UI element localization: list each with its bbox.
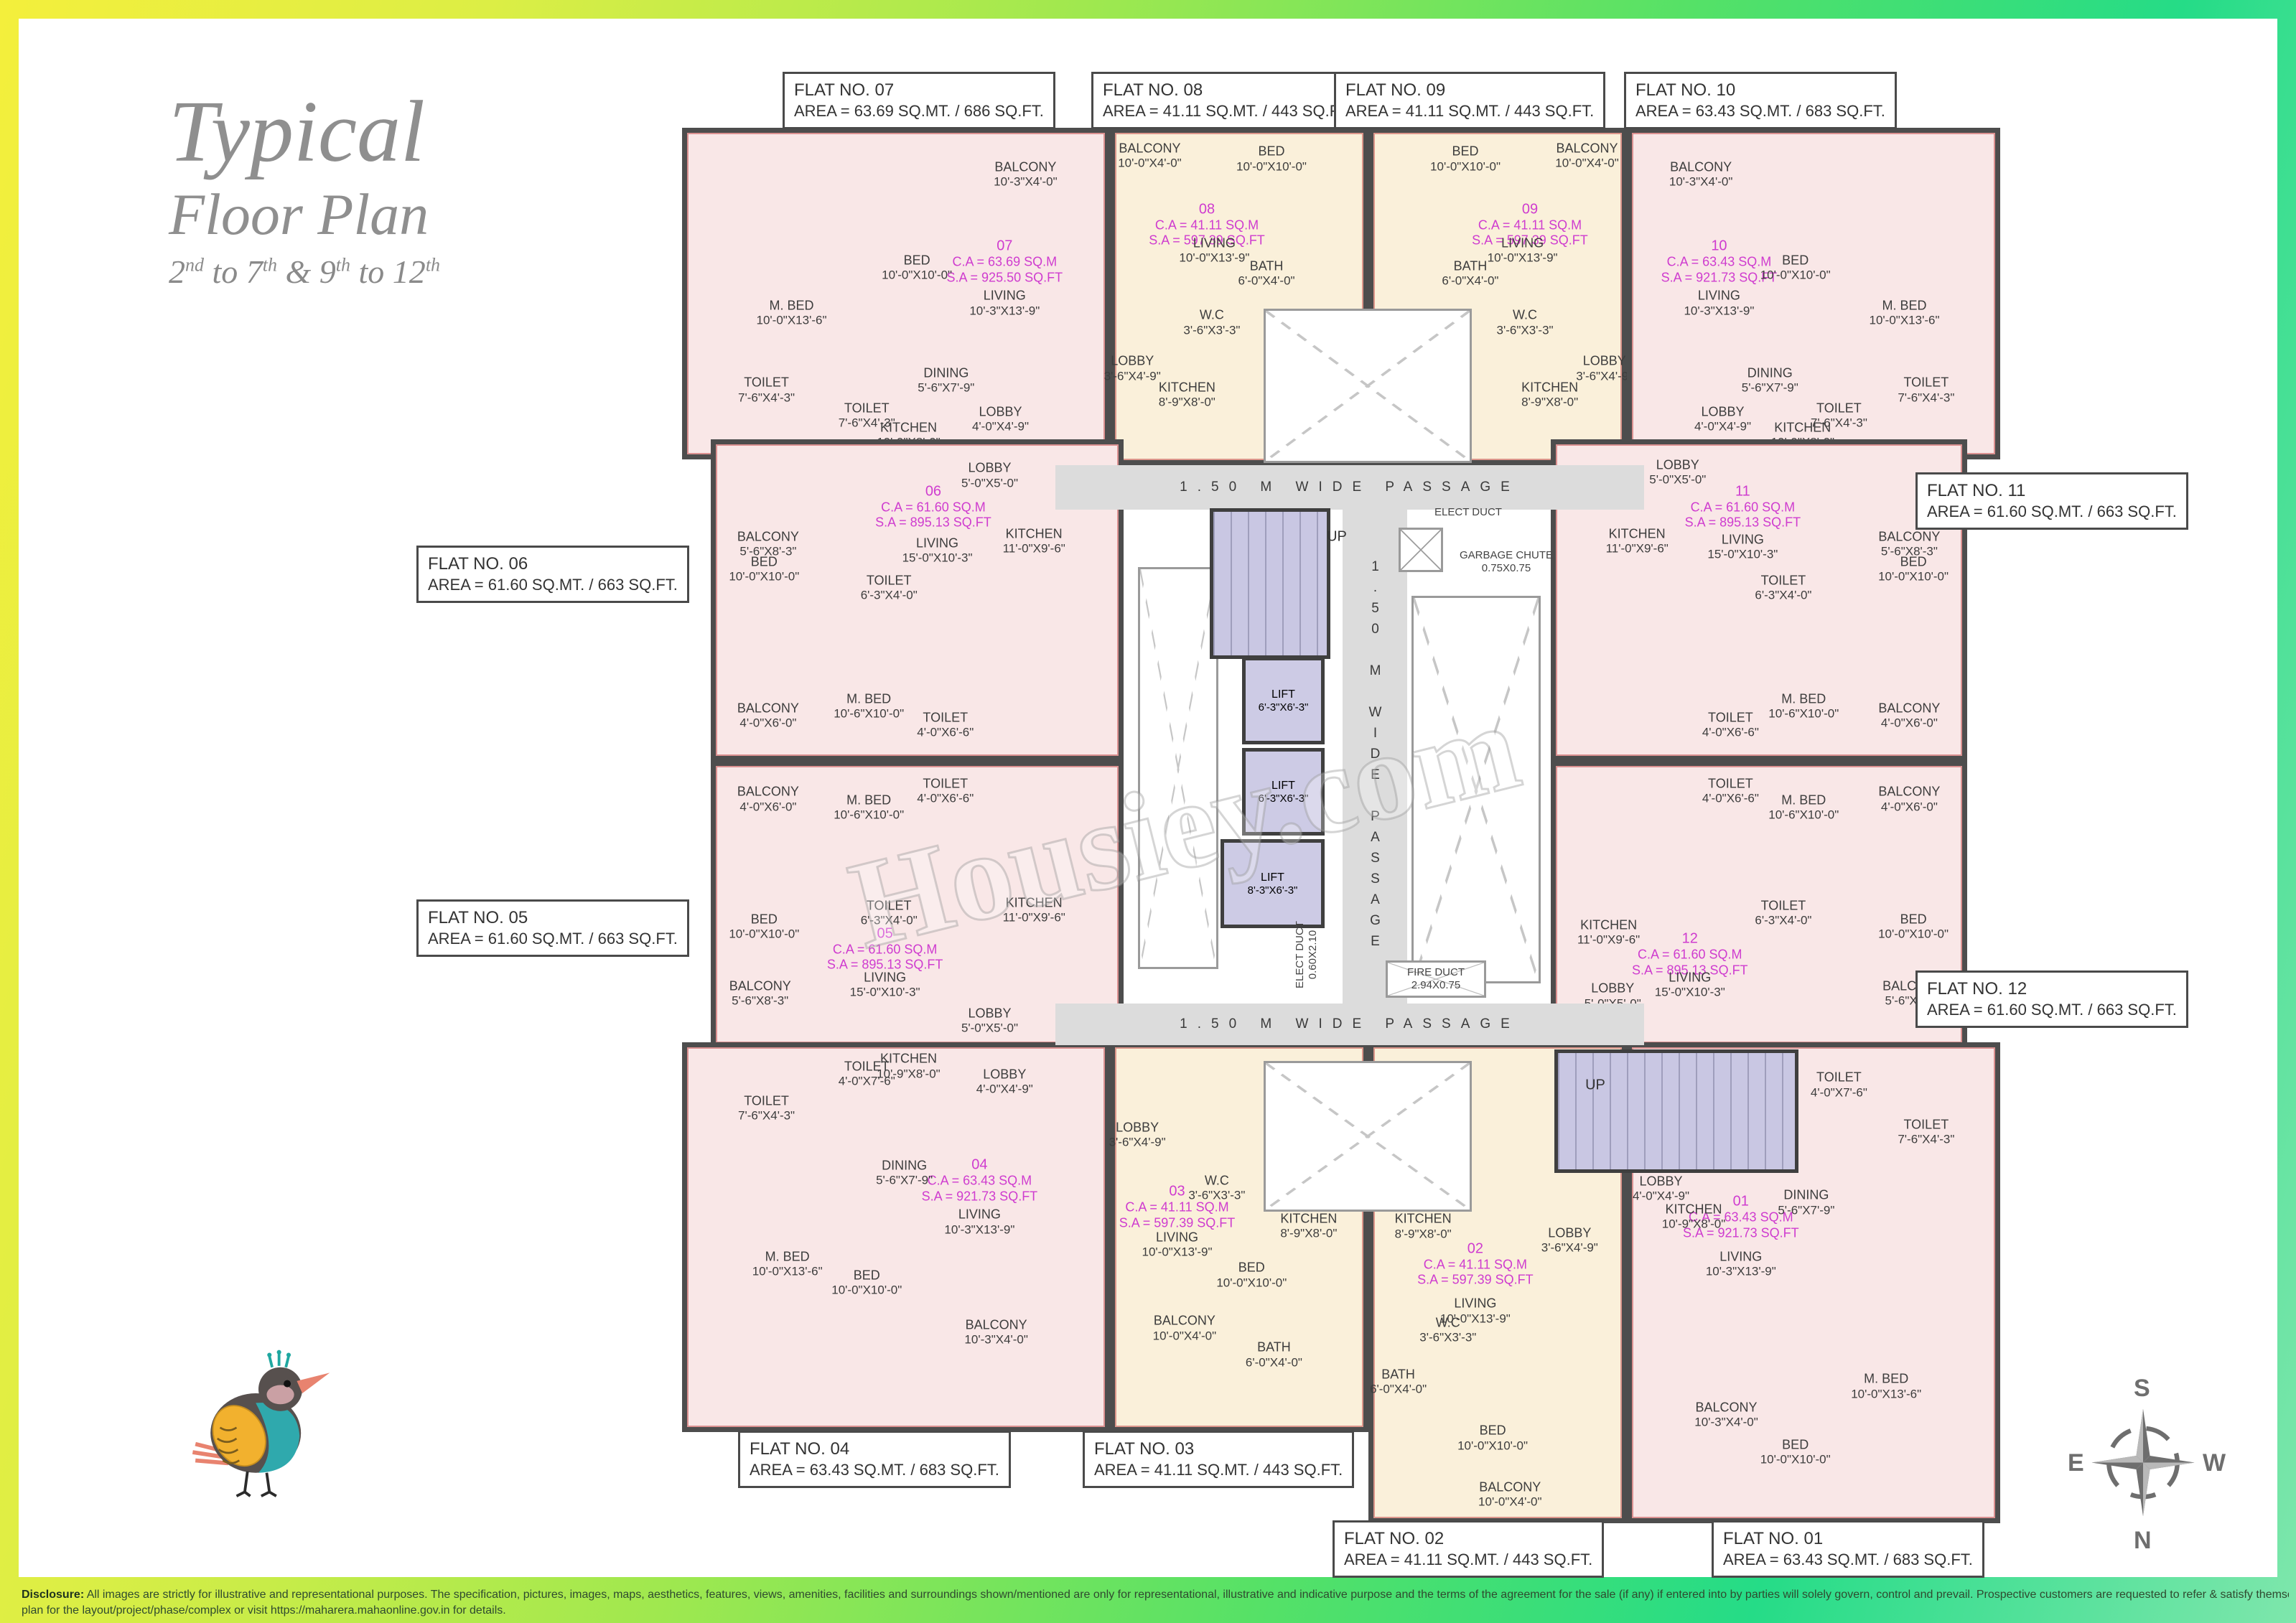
room-label-balcony-name: BALCONY [737, 529, 799, 544]
flat-box-12-area: AREA = 61.60 SQ.MT. / 663 SQ.FT. [1927, 1000, 2177, 1021]
room-label-balcony-name: BALCONY [1694, 1400, 1758, 1415]
flat-11-usa: S.A = 895.13 SQ.FT [1685, 515, 1801, 531]
room-label-lobby-dim: 4'-0"X4'-9" [972, 419, 1029, 434]
room-label-balcony-dim: 10'-0"X4'-0" [1153, 1329, 1217, 1343]
room-label-m-bed: M. BED10'-6"X10'-0" [834, 792, 904, 822]
floor-range-part: 2 [169, 253, 185, 290]
room-label-living-name: LIVING [1684, 289, 1754, 304]
room-label-bed: BED10'-0"X10'-0" [1430, 144, 1501, 174]
room-label-toilet-name: TOILET [1898, 375, 1954, 390]
room-label-balcony-dim: 4'-0"X6'-0" [737, 800, 799, 814]
flat-04-uid: 04 [922, 1156, 1038, 1174]
room-label-toilet: TOILET4'-0"X6'-6" [1702, 710, 1759, 739]
room-label-lobby-dim: 4'-0"X4'-9" [1633, 1189, 1689, 1203]
room-label-m-bed: M. BED10'-6"X10'-0" [1768, 691, 1839, 721]
room-label-dining-name: DINING [1742, 365, 1798, 380]
flat-07-area: 07C.A = 63.69 SQ.MS.A = 925.50 SQ.FTM. B… [682, 128, 1110, 459]
stair-up-label-bottom: UP [1585, 1077, 1605, 1094]
room-label-toilet-dim: 7'-6"X4'-3" [738, 390, 795, 405]
room-label-toilet: TOILET4'-0"X6'-6" [1702, 776, 1759, 805]
room-label-toilet: TOILET7'-6"X4'-3" [738, 375, 795, 405]
room-label-living-dim: 10'-0"X13'-9" [1142, 1245, 1213, 1260]
room-label-lobby-name: LOBBY [1633, 1174, 1689, 1189]
flat-box-02: FLAT NO. 02AREA = 41.11 SQ.MT. / 443 SQ.… [1333, 1520, 1604, 1578]
room-label-dining-dim: 5'-6"X7'-9" [1742, 381, 1798, 396]
room-label-balcony-dim: 10'-0"X4'-0" [1478, 1495, 1542, 1510]
room-label-dining: DINING5'-6"X7'-9" [876, 1158, 933, 1187]
room-label-dining: DINING5'-6"X7'-9" [1778, 1188, 1834, 1217]
shaft-void [1264, 309, 1472, 463]
room-label-lobby-name: LOBBY [961, 1006, 1018, 1021]
room-label-lobby: LOBBY3'-6"X4'-9" [1109, 1120, 1166, 1149]
room-label-bath-name: BATH [1238, 258, 1295, 273]
room-label-living-name: LIVING [1706, 1249, 1776, 1264]
room-label-bath-dim: 6'-0"X4'-0" [1442, 274, 1498, 289]
flat-box-10-area: AREA = 63.43 SQ.MT. / 683 SQ.FT. [1635, 101, 1885, 122]
flat-box-09-area: AREA = 41.11 SQ.MT. / 443 SQ.FT. [1345, 101, 1594, 122]
room-label-bed-dim: 10'-0"X10'-0" [1878, 569, 1949, 584]
lift-shaft: LIFT6'-3"X6'-3" [1242, 748, 1325, 836]
passage-bottom: 1.50 M WIDE PASSAGE [1055, 1004, 1644, 1045]
floor-range-part: th [336, 255, 350, 276]
flat-07-usa: S.A = 925.50 SQ.FT [947, 270, 1063, 286]
room-label-living-dim: 15'-0"X10'-3" [1707, 548, 1778, 562]
room-label-living-name: LIVING [902, 535, 973, 551]
room-label-kitchen: KITCHEN8'-9"X8'-0" [1395, 1212, 1452, 1241]
room-label-toilet-dim: 7'-6"X4'-3" [1898, 1133, 1954, 1147]
garbage-chute-box [1399, 528, 1443, 572]
room-label-balcony-name: BALCONY [1555, 141, 1619, 156]
room-label-living-name: LIVING [969, 289, 1040, 304]
flat-04-area: 04C.A = 63.43 SQ.MS.A = 921.73 SQ.FTM. B… [682, 1042, 1110, 1432]
flat-box-10-title: FLAT NO. 10 [1635, 79, 1885, 101]
compass-bottom-label: N [2134, 1527, 2152, 1555]
room-label-lobby-name: LOBBY [1649, 457, 1706, 472]
passage-top: 1.50 M WIDE PASSAGE [1055, 465, 1644, 510]
room-label-bed-name: BED [1457, 1423, 1528, 1439]
room-label-living-name: LIVING [1488, 236, 1558, 251]
fire-duct-label: FIRE DUCT2.94X0.75 [1407, 966, 1465, 992]
room-label-living-dim: 15'-0"X10'-3" [850, 986, 920, 1000]
room-label-lobby-dim: 4'-0"X4'-9" [1694, 419, 1751, 434]
room-label-m-bed: M. BED10'-6"X10'-0" [834, 691, 904, 721]
room-label-kitchen-name: KITCHEN [877, 420, 941, 435]
room-label-toilet-dim: 6'-3"X4'-0" [861, 588, 918, 602]
passage-label: 1.50 M WIDE PASSAGE [1180, 1016, 1520, 1032]
flat-09-uid: 09 [1472, 200, 1588, 218]
room-label-lobby-dim: 5'-0"X5'-0" [1649, 473, 1706, 487]
room-label-kitchen-dim: 11'-0"X9'-6" [1003, 910, 1065, 925]
room-label-m-bed-dim: 10'-6"X10'-0" [1768, 706, 1839, 721]
room-label-living-dim: 10'-3"X13'-9" [1706, 1264, 1776, 1278]
room-label-balcony-dim: 10'-0"X4'-0" [1555, 156, 1619, 171]
flat-box-09: FLAT NO. 09AREA = 41.11 SQ.MT. / 443 SQ.… [1334, 72, 1605, 129]
flat-02-uid: 02 [1417, 1240, 1534, 1257]
floor-range-part: nd [185, 255, 204, 276]
flat-box-04-area: AREA = 63.43 SQ.MT. / 683 SQ.FT. [750, 1460, 999, 1481]
room-label-bed-dim: 10'-0"X10'-0" [1430, 159, 1501, 174]
lift-label: LIFT8'-3"X6'-3" [1248, 871, 1298, 897]
flat-box-07-title: FLAT NO. 07 [794, 79, 1044, 101]
flat-box-07: FLAT NO. 07AREA = 63.69 SQ.MT. / 686 SQ.… [783, 72, 1055, 129]
room-label-w-c-dim: 3'-6"X3'-3" [1419, 1330, 1476, 1344]
flat-09-uca: C.A = 41.11 SQ.M [1472, 218, 1588, 233]
room-label-lobby: LOBBY4'-0"X4'-9" [1633, 1174, 1689, 1203]
room-label-bed-dim: 10'-0"X10'-0" [1457, 1439, 1528, 1453]
room-label-bed-dim: 10'-0"X10'-0" [729, 927, 799, 941]
flat-04-usa: S.A = 921.73 SQ.FT [922, 1189, 1038, 1205]
room-label-lobby-name: LOBBY [1541, 1225, 1598, 1240]
flat-box-06-title: FLAT NO. 06 [428, 553, 678, 575]
room-label-lobby-name: LOBBY [972, 404, 1029, 419]
room-label-living-dim: 15'-0"X10'-3" [902, 551, 973, 565]
flat-box-12-title: FLAT NO. 12 [1927, 978, 2177, 1000]
floor-range: 2nd to 7th & 9th to 12th [169, 254, 571, 291]
room-label-balcony: BALCONY4'-0"X6'-0" [1878, 701, 1940, 730]
flat-04-uca: C.A = 63.43 SQ.M [922, 1174, 1038, 1189]
room-label-toilet-dim: 4'-0"X6'-6" [917, 791, 974, 805]
room-label-bed-dim: 10'-0"X10'-0" [729, 569, 799, 584]
room-label-w-c-dim: 3'-6"X3'-3" [1183, 323, 1240, 337]
room-label-balcony-name: BALCONY [737, 701, 799, 716]
room-label-toilet: TOILET7'-6"X4'-3" [738, 1093, 795, 1123]
flat-08-uid: 08 [1149, 200, 1265, 218]
room-label-m-bed: M. BED10'-6"X10'-0" [1768, 792, 1839, 822]
room-label-lobby-name: LOBBY [1109, 1120, 1166, 1135]
flat-10-uid: 10 [1661, 238, 1778, 255]
room-label-m-bed: M. BED10'-0"X13'-6" [757, 298, 827, 327]
flat-07-uca: C.A = 63.69 SQ.M [947, 255, 1063, 271]
room-label-toilet-dim: 4'-0"X6'-6" [1702, 725, 1759, 739]
flat-07-unit-info: 07C.A = 63.69 SQ.MS.A = 925.50 SQ.FT [947, 238, 1063, 286]
room-label-w-c-name: W.C [1419, 1315, 1476, 1330]
flat-box-04-title: FLAT NO. 04 [750, 1438, 999, 1460]
room-label-kitchen-name: KITCHEN [1395, 1212, 1452, 1227]
room-label-lobby-dim: 3'-6"X4'-9" [1104, 369, 1161, 383]
room-label-living: LIVING10'-0"X13'-9" [1142, 1230, 1213, 1259]
flat-05-uca: C.A = 61.60 SQ.M [827, 942, 943, 958]
flat-box-06-area: AREA = 61.60 SQ.MT. / 663 SQ.FT. [428, 575, 678, 596]
room-label-balcony-dim: 10'-3"X4'-0" [964, 1332, 1028, 1347]
floor-range-part: to 12 [350, 253, 426, 290]
room-label-kitchen-dim: 11'-0"X9'-6" [1577, 932, 1640, 947]
passage-label: 1.50 M WIDE PASSAGE [1367, 559, 1383, 955]
room-label-kitchen-name: KITCHEN [1521, 380, 1578, 395]
room-label-bath-dim: 6'-0"X4'-0" [1370, 1382, 1427, 1396]
room-label-lobby-name: LOBBY [1585, 981, 1641, 996]
room-label-toilet-name: TOILET [1702, 776, 1759, 791]
room-label-m-bed-name: M. BED [757, 298, 827, 313]
room-label-living: LIVING10'-3"X13'-9" [1706, 1249, 1776, 1278]
room-label-bath: BATH6'-0"X4'-0" [1238, 258, 1295, 288]
flat-box-08: FLAT NO. 08AREA = 41.11 SQ.MT. / 443 SQ.… [1091, 72, 1363, 129]
disclaimer-line1: Disclosure: All images are strictly for … [22, 1589, 2289, 1601]
room-label-bed-name: BED [729, 912, 799, 927]
room-label-kitchen: KITCHEN8'-9"X8'-0" [1159, 380, 1215, 409]
room-label-toilet-dim: 7'-6"X4'-3" [738, 1108, 795, 1123]
room-label-w-c-dim: 3'-6"X3'-3" [1497, 323, 1554, 337]
flat-box-01: FLAT NO. 01AREA = 63.43 SQ.MT. / 683 SQ.… [1712, 1520, 1984, 1578]
flat-10-area: 10C.A = 63.43 SQ.MS.A = 921.73 SQ.FTM. B… [1627, 128, 2000, 459]
room-label-m-bed-dim: 10'-6"X10'-0" [1768, 808, 1839, 822]
room-label-dining: DINING5'-6"X7'-9" [1742, 365, 1798, 395]
room-label-living-name: LIVING [1142, 1230, 1213, 1245]
flat-box-02-area: AREA = 41.11 SQ.MT. / 443 SQ.FT. [1344, 1550, 1592, 1571]
room-label-w-c: W.C3'-6"X3'-3" [1419, 1315, 1476, 1344]
room-label-balcony-name: BALCONY [994, 160, 1058, 175]
room-label-bed: BED10'-0"X10'-0" [1457, 1423, 1528, 1453]
room-label-living-name: LIVING [1655, 970, 1725, 985]
room-label-balcony: BALCONY10'-0"X4'-0" [1478, 1480, 1542, 1510]
room-label-kitchen-name: KITCHEN [1577, 917, 1640, 932]
room-label-balcony-dim: 10'-3"X4'-0" [1694, 1415, 1758, 1429]
compass-right-label: W [2203, 1449, 2226, 1477]
room-label-balcony-dim: 10'-3"X4'-0" [1669, 175, 1733, 190]
room-label-balcony: BALCONY10'-3"X4'-0" [1669, 160, 1733, 190]
room-label-bath-name: BATH [1442, 258, 1498, 273]
room-label-toilet-dim: 6'-3"X4'-0" [1755, 913, 1811, 927]
room-label-bed-dim: 10'-0"X10'-0" [1878, 927, 1949, 941]
shaft-void [1411, 596, 1541, 983]
room-label-kitchen: KITCHEN8'-9"X8'-0" [1521, 380, 1578, 409]
room-label-lobby: LOBBY4'-0"X4'-9" [976, 1067, 1033, 1096]
room-label-lobby: LOBBY3'-6"X4'-9" [1104, 354, 1161, 383]
room-label-lobby-dim: 3'-6"X4'-9" [1541, 1241, 1598, 1255]
room-label-bed: BED10'-0"X10'-0" [729, 554, 799, 584]
room-label-dining-name: DINING [876, 1158, 933, 1173]
room-label-bed-name: BED [729, 554, 799, 569]
flat-box-12: FLAT NO. 12AREA = 61.60 SQ.MT. / 663 SQ.… [1915, 970, 2188, 1028]
flat-box-01-title: FLAT NO. 01 [1723, 1528, 1973, 1550]
lift-shaft: LIFT8'-3"X6'-3" [1221, 839, 1325, 928]
room-label-living: LIVING15'-0"X10'-3" [850, 970, 920, 999]
lift-shaft: LIFT6'-3"X6'-3" [1242, 657, 1325, 744]
room-label-balcony: BALCONY4'-0"X6'-0" [737, 785, 799, 814]
room-label-kitchen-dim: 11'-0"X9'-6" [1606, 541, 1669, 556]
room-label-toilet-name: TOILET [917, 776, 974, 791]
room-label-lobby-dim: 5'-0"X5'-0" [961, 1021, 1018, 1036]
room-label-balcony-name: BALCONY [729, 978, 791, 993]
room-label-toilet-name: TOILET [1811, 1070, 1867, 1085]
room-label-bed-name: BED [831, 1268, 902, 1283]
room-label-toilet-name: TOILET [1702, 710, 1759, 725]
room-label-toilet: TOILET4'-0"X6'-6" [917, 776, 974, 805]
room-label-lobby: LOBBY3'-6"X4'-9" [1541, 1225, 1598, 1255]
room-label-toilet-name: TOILET [839, 401, 895, 416]
floor-plan-page: 07C.A = 63.69 SQ.MS.A = 925.50 SQ.FTM. B… [0, 0, 2296, 1623]
room-label-toilet: TOILET6'-3"X4'-0" [1755, 573, 1811, 602]
room-label-w-c-name: W.C [1497, 308, 1554, 323]
room-label-balcony-dim: 10'-0"X4'-0" [1118, 156, 1182, 171]
room-label-bed-dim: 10'-0"X10'-0" [1216, 1276, 1287, 1290]
lift-label: LIFT6'-3"X6'-3" [1259, 780, 1309, 805]
room-label-bed-name: BED [1760, 1438, 1831, 1453]
elect-duct-side-label: ELECT DUCT0.60X2.10 [1294, 921, 1320, 988]
disclaimer: Disclosure: All images are strictly for … [22, 1589, 2289, 1617]
room-label-balcony: BALCONY10'-3"X4'-0" [994, 160, 1058, 190]
room-label-lobby-dim: 3'-6"X4'-9" [1576, 369, 1633, 383]
floor-range-part: th [426, 255, 440, 276]
room-label-bed-name: BED [1760, 253, 1831, 268]
room-label-living: LIVING15'-0"X10'-3" [1707, 533, 1778, 562]
room-label-bed: BED10'-0"X10'-0" [1236, 144, 1307, 174]
flat-box-07-area: AREA = 63.69 SQ.MT. / 686 SQ.FT. [794, 101, 1044, 122]
room-label-toilet: TOILET6'-3"X4'-0" [861, 573, 918, 602]
compass-top-label: S [2134, 1375, 2150, 1403]
room-label-bed: BED10'-0"X10'-0" [1760, 1438, 1831, 1467]
room-label-balcony-dim: 4'-0"X6'-0" [1878, 716, 1940, 730]
passage-label: 1.50 M WIDE PASSAGE [1180, 480, 1520, 495]
room-label-lobby: LOBBY3'-6"X4'-9" [1576, 354, 1633, 383]
room-label-m-bed-name: M. BED [834, 691, 904, 706]
room-label-living: LIVING10'-3"X13'-9" [969, 289, 1040, 318]
room-label-balcony: BALCONY10'-3"X4'-0" [964, 1317, 1028, 1347]
flat-box-09-title: FLAT NO. 09 [1345, 79, 1594, 101]
flat-box-03: FLAT NO. 03AREA = 41.11 SQ.MT. / 443 SQ.… [1083, 1431, 1354, 1488]
room-label-toilet-name: TOILET [1755, 898, 1811, 913]
room-label-kitchen: KITCHEN10'-9"X8'-0" [877, 1052, 941, 1081]
flat-box-10: FLAT NO. 10AREA = 63.43 SQ.MT. / 683 SQ.… [1624, 72, 1897, 129]
floor-range-part: & 9 [277, 253, 336, 290]
room-label-kitchen: KITCHEN10'-9"X8'-0" [1662, 1202, 1726, 1232]
room-label-balcony-name: BALCONY [964, 1317, 1028, 1332]
flat-box-02-title: FLAT NO. 02 [1344, 1528, 1592, 1550]
room-label-lobby: LOBBY5'-0"X5'-0" [961, 1006, 1018, 1035]
room-label-m-bed-name: M. BED [752, 1249, 823, 1264]
stair-up-label-top: UP [1327, 529, 1347, 546]
room-label-dining-dim: 5'-6"X7'-9" [918, 381, 974, 396]
room-label-living: LIVING15'-0"X10'-3" [902, 535, 973, 565]
room-label-balcony: BALCONY10'-3"X4'-0" [1694, 1400, 1758, 1429]
room-label-toilet-dim: 7'-6"X4'-3" [1898, 390, 1954, 405]
room-label-balcony-name: BALCONY [1878, 785, 1940, 800]
flat-box-11-title: FLAT NO. 11 [1927, 480, 2177, 502]
elect-duct-top-label: ELECT DUCT [1434, 506, 1502, 519]
room-label-lobby-dim: 5'-0"X5'-0" [961, 476, 1018, 490]
room-label-toilet: TOILET6'-3"X4'-0" [861, 898, 918, 927]
room-label-m-bed: M. BED10'-0"X13'-6" [752, 1249, 823, 1278]
room-label-lobby-name: LOBBY [1104, 354, 1161, 369]
room-label-w-c: W.C3'-6"X3'-3" [1188, 1173, 1245, 1202]
flat-12-uid: 12 [1632, 930, 1748, 948]
flat-05-unit-info: 05C.A = 61.60 SQ.MS.A = 895.13 SQ.FT [827, 925, 943, 973]
room-label-balcony-name: BALCONY [1878, 529, 1940, 544]
room-label-bath-dim: 6'-0"X4'-0" [1238, 274, 1295, 289]
room-label-m-bed-dim: 10'-6"X10'-0" [834, 706, 904, 721]
flat-02-uca: C.A = 41.11 SQ.M [1417, 1257, 1534, 1273]
room-label-kitchen-name: KITCHEN [1003, 526, 1065, 541]
room-label-kitchen: KITCHEN8'-9"X8'-0" [1280, 1211, 1337, 1240]
room-label-toilet-name: TOILET [917, 710, 974, 725]
room-label-lobby-dim: 4'-0"X4'-9" [976, 1082, 1033, 1096]
room-label-m-bed-name: M. BED [834, 792, 904, 808]
room-label-living: LIVING10'-3"X13'-9" [944, 1207, 1014, 1237]
room-label-kitchen-dim: 11'-0"X9'-6" [1003, 541, 1065, 556]
room-label-toilet-name: TOILET [861, 573, 918, 588]
room-label-bed: BED10'-0"X10'-0" [882, 253, 952, 283]
room-label-toilet-name: TOILET [1755, 573, 1811, 588]
room-label-balcony: BALCONY5'-6"X8'-3" [729, 978, 791, 1008]
room-label-toilet-dim: 4'-0"X7'-6" [1811, 1085, 1867, 1100]
room-label-kitchen: KITCHEN11'-0"X9'-6" [1577, 917, 1640, 947]
room-label-toilet-name: TOILET [861, 898, 918, 913]
room-label-m-bed: M. BED10'-0"X13'-6" [1851, 1372, 1921, 1401]
flat-06-uca: C.A = 61.60 SQ.M [875, 500, 991, 515]
room-label-balcony-name: BALCONY [1118, 141, 1182, 156]
room-label-w-c-dim: 3'-6"X3'-3" [1188, 1188, 1245, 1202]
room-label-bed: BED10'-0"X10'-0" [831, 1268, 902, 1297]
room-label-w-c: W.C3'-6"X3'-3" [1183, 308, 1240, 337]
room-label-m-bed-dim: 10'-0"X13'-6" [1870, 313, 1940, 327]
room-label-balcony: BALCONY4'-0"X6'-0" [1878, 785, 1940, 814]
room-label-living-dim: 10'-3"X13'-9" [1684, 304, 1754, 318]
room-label-kitchen: KITCHEN11'-0"X9'-6" [1003, 526, 1065, 556]
room-label-toilet: TOILET7'-6"X4'-3" [1898, 1117, 1954, 1146]
room-label-kitchen: KITCHEN11'-0"X9'-6" [1003, 895, 1065, 925]
room-label-kitchen: KITCHEN11'-0"X9'-6" [1606, 526, 1669, 556]
room-label-living-name: LIVING [944, 1207, 1014, 1222]
flat-box-08-area: AREA = 41.11 SQ.MT. / 443 SQ.FT. [1103, 101, 1351, 122]
room-label-toilet: TOILET6'-3"X4'-0" [1755, 898, 1811, 927]
room-label-bath-dim: 6'-0"X4'-0" [1246, 1355, 1302, 1370]
room-label-lobby: LOBBY5'-0"X5'-0" [1649, 457, 1706, 487]
room-label-bed-name: BED [1216, 1260, 1287, 1276]
room-label-living: LIVING10'-3"X13'-9" [1684, 289, 1754, 318]
room-label-balcony-name: BALCONY [737, 785, 799, 800]
room-label-bed: BED10'-0"X10'-0" [1878, 554, 1949, 584]
flat-box-05-title: FLAT NO. 05 [428, 907, 678, 929]
room-label-bed-dim: 10'-0"X10'-0" [831, 1283, 902, 1298]
room-label-bath-name: BATH [1370, 1367, 1427, 1382]
room-label-balcony: BALCONY4'-0"X6'-0" [737, 701, 799, 730]
compass-icon: S N E W [2068, 1375, 2218, 1554]
bird-logo-icon [176, 1348, 341, 1499]
room-label-m-bed-name: M. BED [1768, 792, 1839, 808]
title-block: Typical Floor Plan 2nd to 7th & 9th to 1… [169, 86, 571, 291]
room-label-m-bed-name: M. BED [1851, 1372, 1921, 1387]
room-label-m-bed: M. BED10'-0"X13'-6" [1870, 298, 1940, 327]
flat-11-unit-info: 11C.A = 61.60 SQ.MS.A = 895.13 SQ.FT [1685, 482, 1801, 530]
flat-12-uca: C.A = 61.60 SQ.M [1632, 948, 1748, 963]
room-label-toilet-dim: 6'-3"X4'-0" [861, 913, 918, 927]
room-label-toilet-name: TOILET [738, 1093, 795, 1108]
room-label-toilet-name: TOILET [738, 375, 795, 390]
room-label-kitchen-dim: 8'-9"X8'-0" [1159, 395, 1215, 409]
flat-box-03-title: FLAT NO. 03 [1094, 1438, 1343, 1460]
room-label-kitchen-name: KITCHEN [1606, 526, 1669, 541]
shaft-void [1264, 1061, 1472, 1212]
room-label-bed-name: BED [882, 253, 952, 268]
room-label-lobby: LOBBY4'-0"X4'-9" [972, 404, 1029, 434]
room-label-dining: DINING5'-6"X7'-9" [918, 365, 974, 395]
room-label-toilet: TOILET7'-6"X4'-3" [1898, 375, 1954, 405]
room-label-kitchen-dim: 8'-9"X8'-0" [1521, 395, 1578, 409]
room-label-m-bed-dim: 10'-0"X13'-6" [1851, 1387, 1921, 1401]
room-label-balcony: BALCONY10'-0"X4'-0" [1118, 141, 1182, 170]
room-label-kitchen-dim: 8'-9"X8'-0" [1395, 1227, 1452, 1241]
room-label-toilet-dim: 6'-3"X4'-0" [1755, 588, 1811, 602]
page-title: Typical [169, 86, 571, 178]
room-label-balcony-name: BALCONY [1478, 1480, 1542, 1495]
room-label-lobby-name: LOBBY [1694, 404, 1751, 419]
room-label-lobby: LOBBY4'-0"X4'-9" [1694, 404, 1751, 434]
room-label-bed-dim: 10'-0"X10'-0" [1760, 1453, 1831, 1467]
room-label-living-name: LIVING [1440, 1296, 1511, 1311]
room-label-living: LIVING15'-0"X10'-3" [1655, 970, 1725, 999]
staircase-top [1210, 508, 1330, 659]
room-label-living-dim: 10'-3"X13'-9" [944, 1222, 1014, 1237]
room-label-kitchen-name: KITCHEN [1771, 420, 1835, 435]
